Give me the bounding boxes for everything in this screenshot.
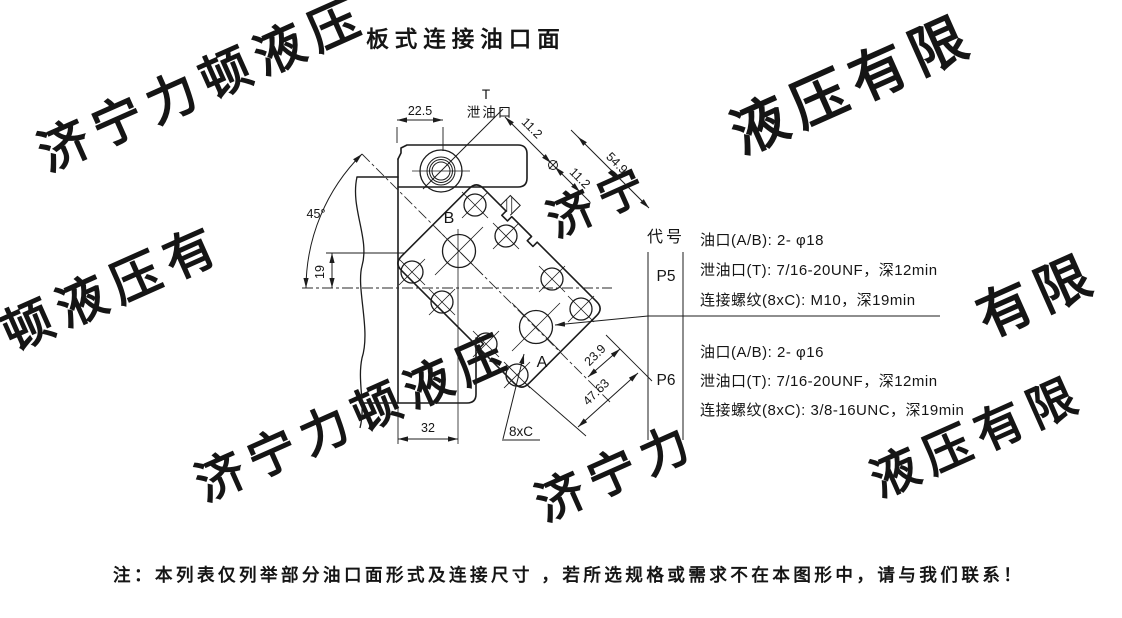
- page-title: 板式连接油口面: [366, 26, 566, 52]
- dim-23-9-value: 23.9: [582, 342, 609, 369]
- spec-p5-ports: 油口(A/B): 2- φ18: [700, 232, 824, 249]
- watermark-text: 济宁力顿液压: [188, 325, 522, 513]
- dim-32-value: 32: [421, 421, 435, 435]
- watermark-text: 有限: [968, 243, 1108, 349]
- spec-row-p6-code: P6: [657, 372, 676, 389]
- bolt-callout-label: 8xC: [509, 424, 533, 439]
- spec-p6-thread: 连接螺纹(8xC): 3/8-16UNC，深19min: [700, 402, 964, 419]
- spec-row-p5-code: P5: [657, 268, 676, 285]
- edge-tab: [500, 195, 520, 215]
- watermark-text: 液压有限: [721, 3, 984, 166]
- dim-45deg-value: 45°: [307, 207, 326, 221]
- dim-node-marker: [549, 161, 558, 170]
- drawing-canvas: 济宁力顿液压 液压有限 顿液压有 济宁力顿液压 济宁力 液压有限 有限 济宁 板…: [0, 0, 1122, 618]
- port-a-table-leader: [555, 316, 940, 325]
- top-block-outline: [398, 145, 527, 187]
- spec-p6-drain: 泄油口(T): 7/16-20UNF，深12min: [700, 373, 938, 390]
- watermark-text: 顿液压有: [0, 215, 232, 362]
- bolt-hole: [462, 192, 488, 218]
- footer-note: 注：本列表仅列举部分油口面形式及连接尺寸 ，若所选规格或需求不在本图形中，请与我…: [113, 565, 1024, 585]
- watermark-text: 济宁力顿液压: [30, 0, 376, 182]
- dim-22-5-value: 22.5: [408, 104, 432, 118]
- bolt-hole: [493, 223, 519, 249]
- dim-11-2a-value: 11.2: [519, 115, 545, 141]
- dim-diag-extensions: [524, 335, 652, 436]
- spec-p5-thread: 连接螺纹(8xC): M10，深19min: [700, 292, 916, 309]
- watermark-text: 济宁力: [528, 414, 706, 532]
- dim-19-value: 19: [313, 265, 327, 279]
- bolt-hole: [568, 296, 594, 322]
- port-a-label: A: [537, 354, 548, 371]
- t-port-name: 泄油口: [467, 105, 514, 120]
- spec-table: 代号 P5 油口(A/B): 2- φ18 泄油口(T): 7/16-20UNF…: [647, 228, 964, 440]
- port-b-label: B: [444, 210, 455, 227]
- spec-p5-drain: 泄油口(T): 7/16-20UNF，深12min: [700, 262, 938, 279]
- watermark-layer: 济宁力顿液压 液压有限 顿液压有 济宁力顿液压 济宁力 液压有限 有限 济宁: [0, 0, 1108, 532]
- t-port-label: T: [482, 87, 490, 102]
- port-a: [512, 303, 560, 351]
- dim-47-63-value: 47.63: [580, 376, 612, 408]
- t-port: [412, 109, 503, 192]
- t-port-leader: [423, 109, 503, 189]
- spec-table-header: 代号: [647, 228, 685, 246]
- spec-p6-ports: 油口(A/B): 2- φ16: [700, 344, 824, 361]
- edge-tab-hatch: [500, 195, 520, 215]
